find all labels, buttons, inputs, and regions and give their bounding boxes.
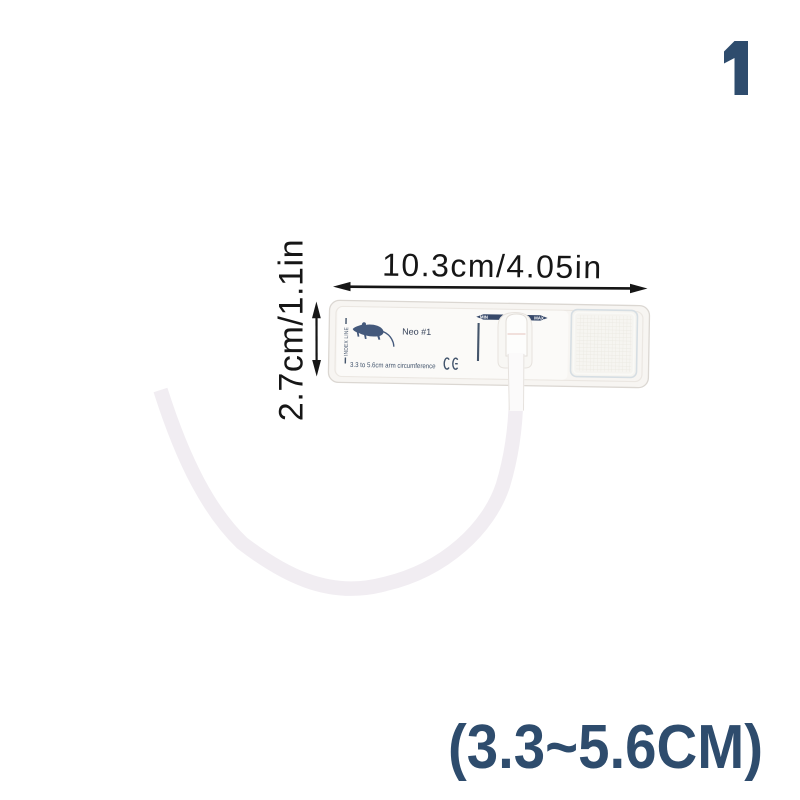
svg-text:(3.3~5.6CM): (3.3~5.6CM)	[448, 713, 763, 782]
svg-text:3.3 to 5.6cm arm circumferenc: 3.3 to 5.6cm arm circumference	[350, 362, 436, 370]
svg-text:10.3cm/4.05in: 10.3cm/4.05in	[382, 247, 601, 286]
svg-text:2.7cm/1.1in: 2.7cm/1.1in	[273, 239, 311, 421]
svg-text:Neo #1: Neo #1	[402, 326, 431, 337]
svg-text:INDEX LINE: INDEX LINE	[344, 327, 351, 356]
svg-text:MIN: MIN	[480, 315, 488, 320]
svg-text:MAX: MAX	[534, 315, 544, 320]
